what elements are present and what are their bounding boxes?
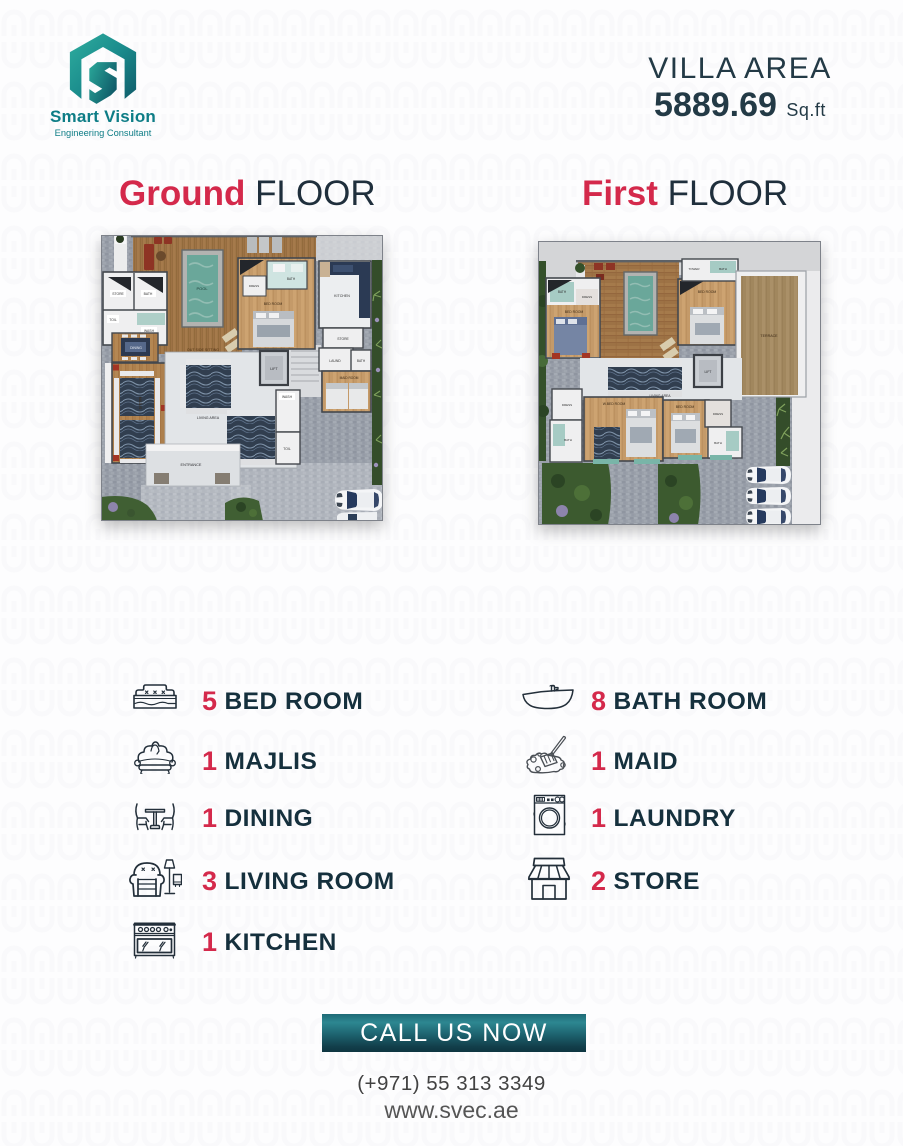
svg-text:DINING: DINING <box>130 346 142 350</box>
svg-text:BATH: BATH <box>564 438 572 442</box>
svg-text:OUT SIDE SITTING: OUT SIDE SITTING <box>187 348 219 352</box>
svg-text:TOIL: TOIL <box>283 447 291 451</box>
svg-text:DRESS: DRESS <box>249 284 259 288</box>
svg-text:TOWER: TOWER <box>688 267 700 271</box>
svg-text:DRESS: DRESS <box>562 403 572 407</box>
svg-text:KITCHEN: KITCHEN <box>334 294 350 298</box>
svg-text:BED ROOM: BED ROOM <box>698 290 717 294</box>
svg-text:W.BED ROOM: W.BED ROOM <box>603 402 626 406</box>
svg-text:TERRACE: TERRACE <box>760 334 778 338</box>
svg-text:STORE: STORE <box>112 292 124 296</box>
svg-text:LIVING AREA: LIVING AREA <box>197 416 220 420</box>
svg-text:STORE: STORE <box>337 337 349 341</box>
svg-text:BATH: BATH <box>714 441 722 445</box>
svg-text:BATH: BATH <box>144 292 153 296</box>
svg-text:BED ROOM: BED ROOM <box>565 310 584 314</box>
svg-text:TOIL: TOIL <box>109 318 117 322</box>
svg-text:WASH: WASH <box>282 395 293 399</box>
svg-text:LAUND: LAUND <box>329 359 341 363</box>
svg-text:BATH: BATH <box>719 267 727 271</box>
svg-text:BATH: BATH <box>357 359 366 363</box>
svg-text:DRESS: DRESS <box>582 295 592 299</box>
svg-text:BED ROOM: BED ROOM <box>676 405 695 409</box>
svg-text:MAID ROOM: MAID ROOM <box>340 376 359 380</box>
svg-text:BATH: BATH <box>287 277 296 281</box>
svg-text:MAJLIS: MAJLIS <box>138 397 142 410</box>
svg-text:DRESS: DRESS <box>713 412 723 416</box>
svg-text:BATH: BATH <box>558 290 567 294</box>
svg-text:LIFT: LIFT <box>705 370 712 374</box>
svg-text:LIFT: LIFT <box>270 367 278 371</box>
svg-text:BED ROOM: BED ROOM <box>264 302 283 306</box>
svg-text:ENTRANCE: ENTRANCE <box>181 463 202 467</box>
svg-text:POOL: POOL <box>196 286 208 291</box>
